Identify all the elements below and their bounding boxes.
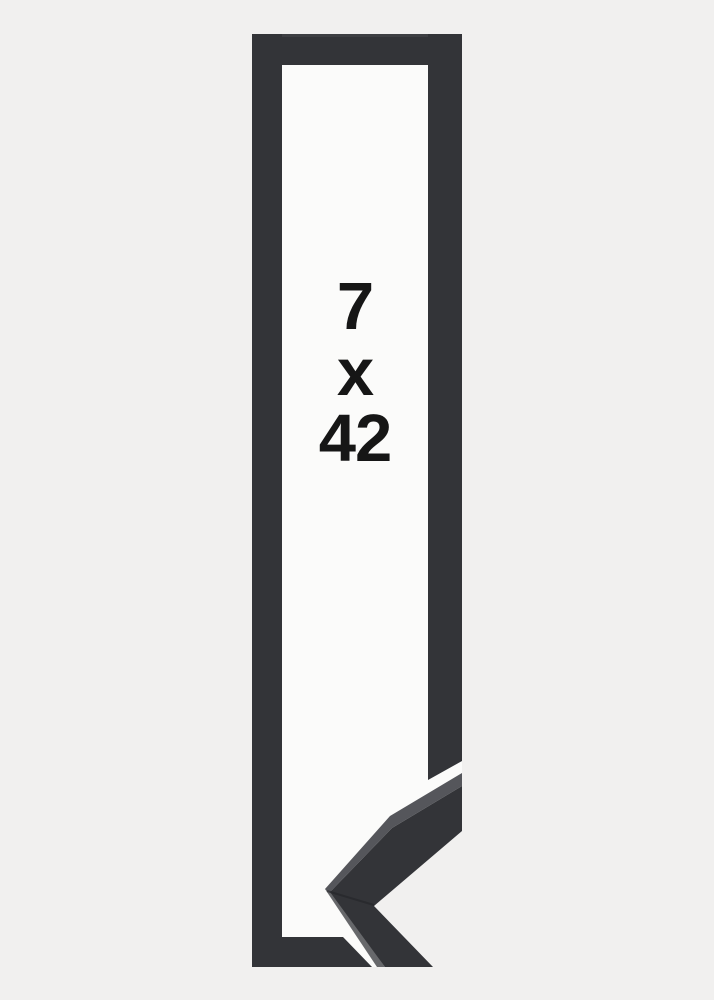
size-height-value: 42 xyxy=(282,406,428,472)
frame-left-bar xyxy=(252,34,282,967)
frame-right-bar xyxy=(428,34,462,780)
frame-size-label: 7 x 42 xyxy=(282,274,428,472)
size-width-value: 7 xyxy=(282,274,428,340)
frame-corner-graphic xyxy=(0,0,714,1000)
product-image: 7 x 42 xyxy=(0,0,714,1000)
size-separator: x xyxy=(282,340,428,406)
